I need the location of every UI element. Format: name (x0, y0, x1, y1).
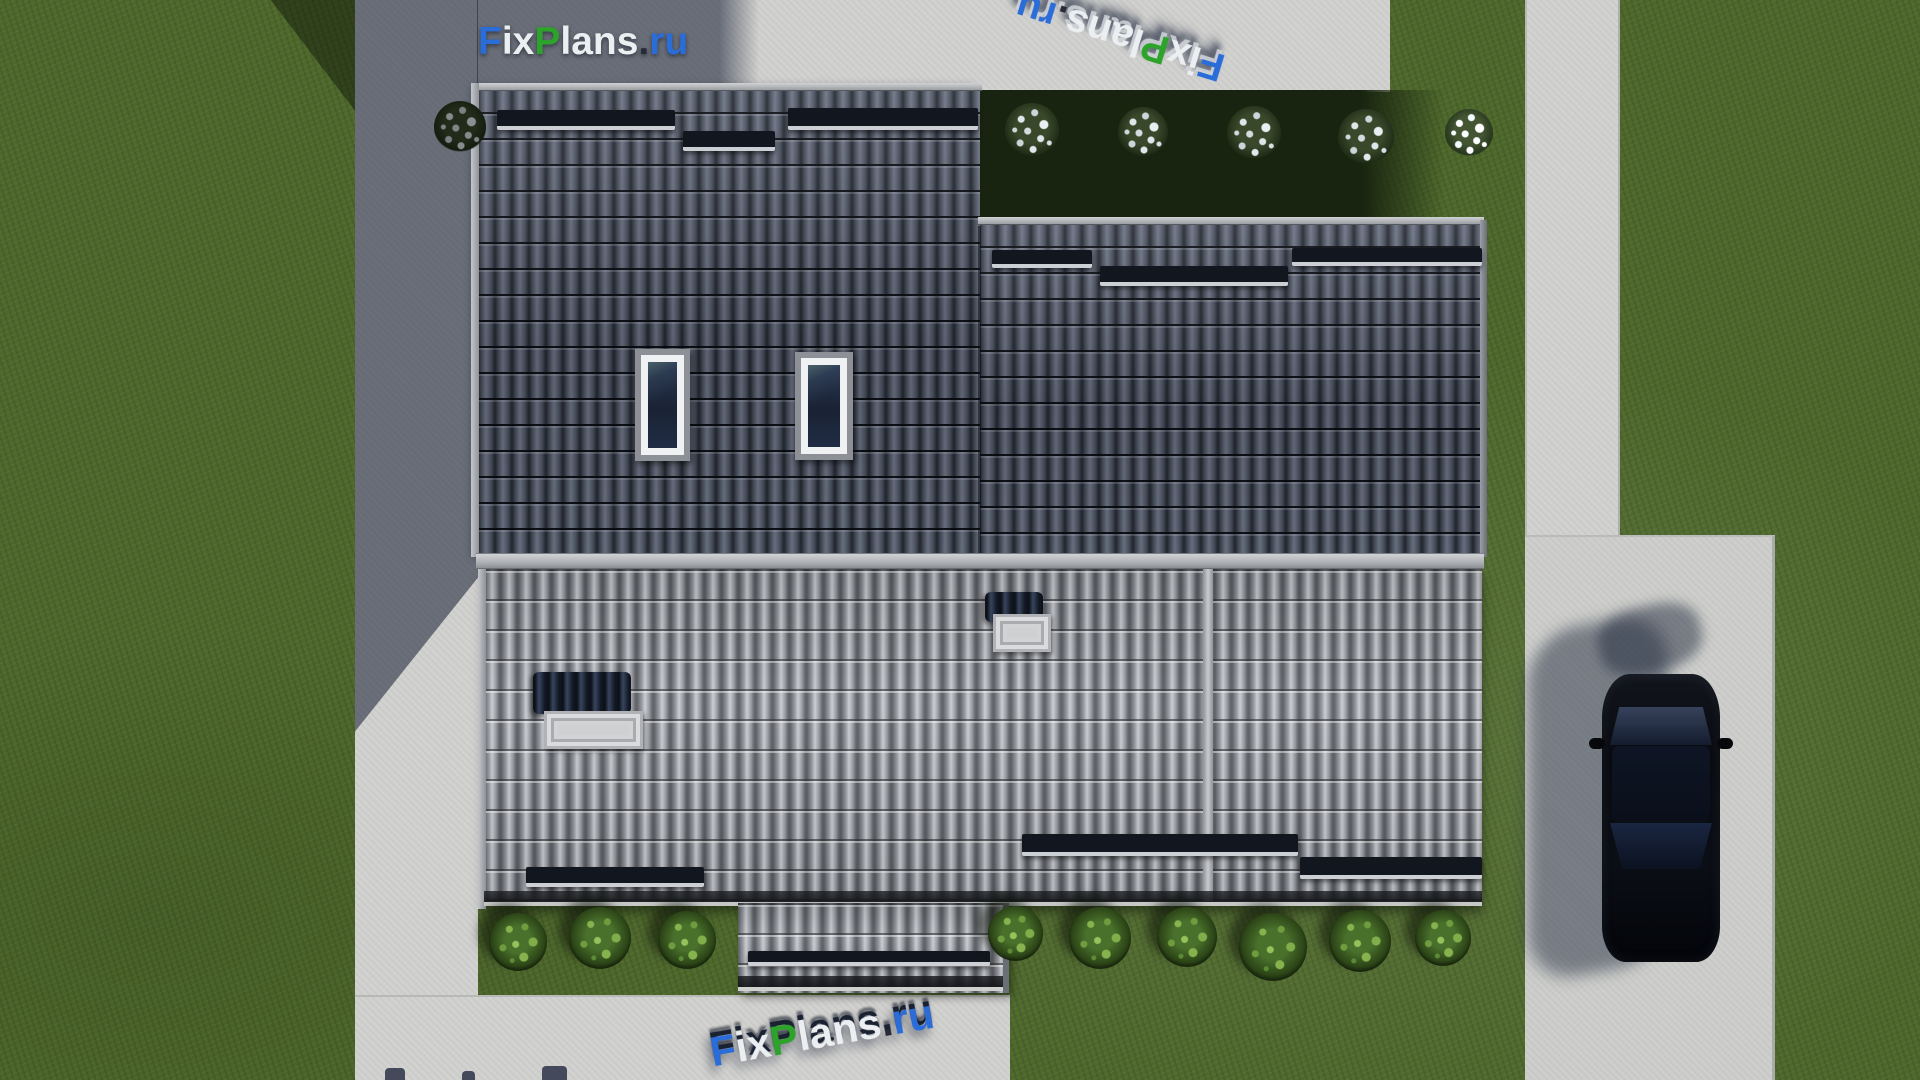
brand-letter: . (638, 20, 649, 64)
green-bush (1415, 910, 1471, 966)
clipped-glyph (385, 1068, 405, 1080)
snow-guard-row (683, 131, 775, 151)
ridge-cap-upper-left (474, 83, 982, 91)
snow-guard-row (748, 951, 990, 966)
porch-eave-band (738, 976, 1008, 987)
white-bush (1227, 106, 1281, 160)
snow-guard-row (526, 867, 704, 887)
skylight-glass (801, 358, 847, 454)
roof-hatch-box (544, 711, 643, 749)
skylight (795, 352, 853, 460)
fascia-left-upper (471, 83, 479, 557)
car-roof (1612, 746, 1710, 822)
ridge-band-middle (476, 553, 1484, 569)
snow-guard-row (1100, 266, 1288, 286)
car-rear-window (1610, 823, 1712, 869)
clipped-glyph (462, 1071, 475, 1080)
car-windshield (1610, 707, 1712, 745)
white-bush (1338, 109, 1394, 165)
snow-guard-row (497, 110, 675, 130)
walkway-right (1525, 0, 1620, 540)
roof-hatch-panel (533, 672, 631, 714)
roof-upper-left-wing (478, 86, 980, 557)
roof-hatch-box (993, 614, 1051, 652)
white-bush (1118, 107, 1168, 157)
car (1602, 674, 1720, 962)
skylight (635, 349, 690, 461)
brand-letter: lans (794, 999, 885, 1061)
render-canvas: FixPlans.ru FixPlans.ru FixPlans.ru (0, 0, 1920, 1080)
brand-letter: P (534, 20, 560, 64)
grass-shadow-corner (252, 0, 356, 112)
brand-letter: F (478, 20, 502, 64)
green-bush (489, 913, 547, 971)
snow-guard-row (1300, 857, 1482, 879)
porch-gutter-line (738, 987, 1008, 991)
green-bush (658, 911, 716, 969)
green-bush (1329, 910, 1391, 972)
white-bush (1005, 103, 1059, 157)
green-bush (569, 907, 631, 969)
brand-letter: ru (649, 20, 688, 64)
clipped-glyph (542, 1066, 567, 1080)
skylight-glass (641, 355, 684, 455)
green-bush (1069, 907, 1131, 969)
green-bush (1239, 913, 1307, 981)
fascia-right (1480, 220, 1487, 557)
snow-guard-row (788, 108, 978, 130)
green-bush (1157, 907, 1217, 967)
car-mirror-left (1589, 738, 1605, 749)
snow-guard-row (1292, 248, 1482, 266)
brand-letter: ix (502, 20, 535, 64)
brand-letter: ru (888, 990, 938, 1045)
brand-logo: FixPlans.ru (478, 18, 718, 66)
white-bush (1445, 109, 1493, 157)
white-bush (434, 101, 486, 153)
brand-letter: lans (1059, 0, 1149, 65)
fascia-left-lower (478, 569, 486, 909)
snow-guard-row (1022, 834, 1298, 856)
roof-wing-seam (978, 226, 981, 557)
brand-letter: lans (560, 20, 638, 64)
green-bush (988, 906, 1043, 961)
car-mirror-right (1717, 738, 1733, 749)
ridge-cap-upper-right (978, 217, 1484, 225)
snow-guard-row (992, 250, 1092, 268)
clipped-text-fragment (360, 1060, 610, 1080)
